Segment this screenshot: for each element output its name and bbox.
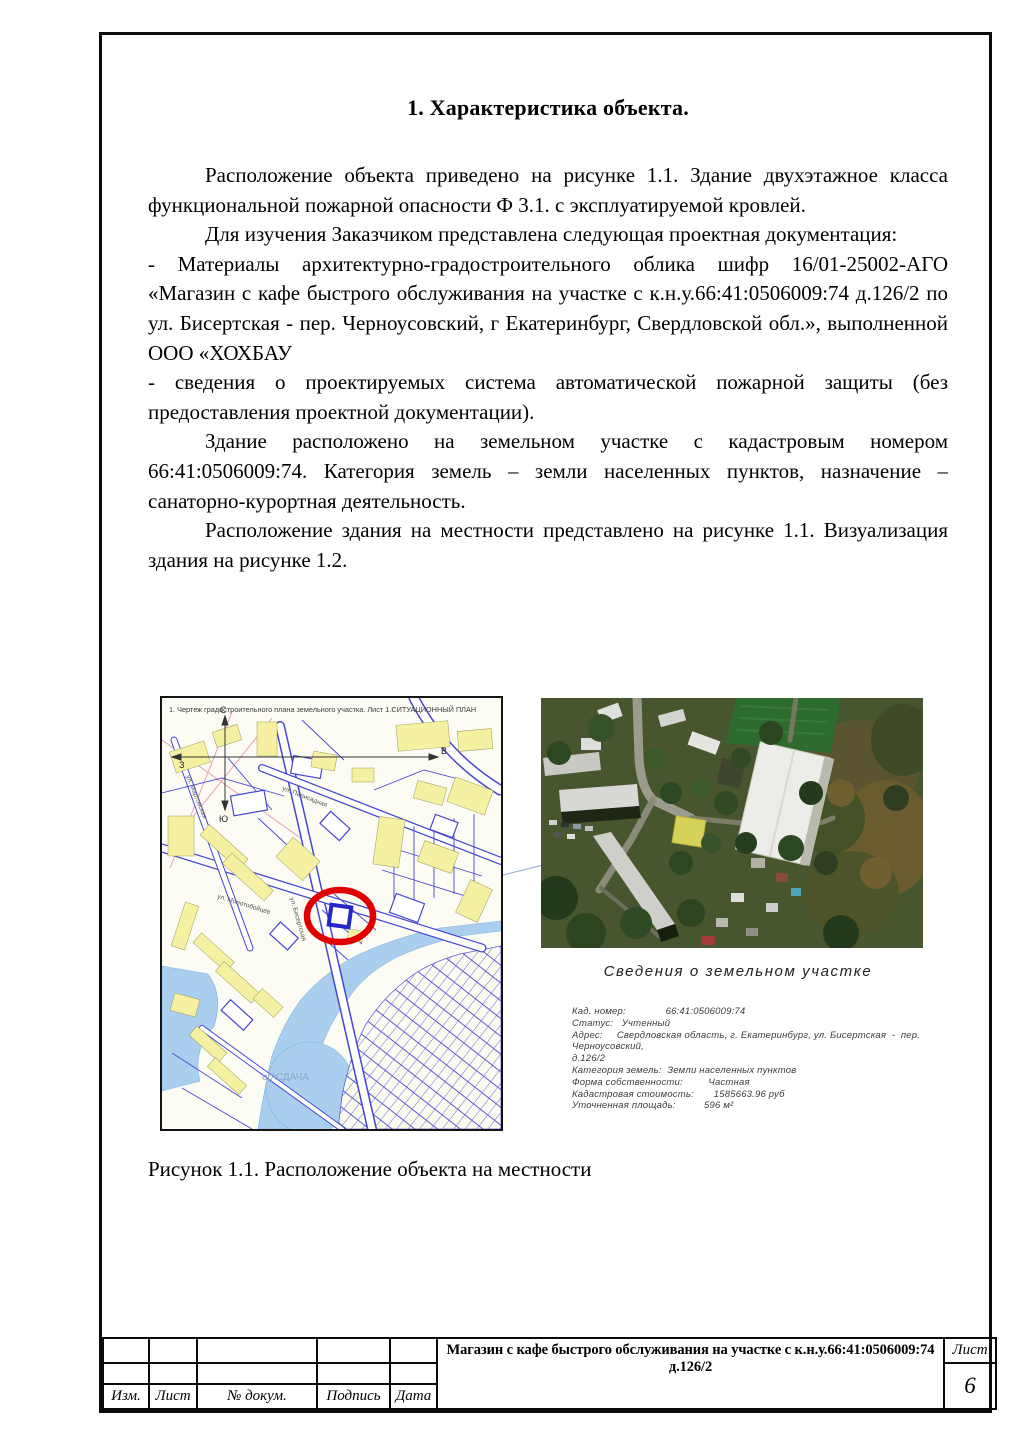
parcel-info-line: Статус: Учтенный [572, 1018, 962, 1030]
tb-label-data: Дата [390, 1384, 437, 1409]
target-parcel-highlight [672, 816, 706, 847]
tb-empty-cell [317, 1338, 390, 1363]
tb-empty-cell [390, 1363, 437, 1383]
parcel-info-block: Сведения о земельном участке Кад. номер:… [542, 963, 962, 1112]
compass-south-label: Ю [219, 814, 228, 824]
compass-east-label: В [441, 746, 447, 756]
parcel-info-line: д.126/2 [572, 1053, 962, 1065]
paragraph: - сведения о проектируемых система автом… [148, 368, 948, 427]
figure-caption: Рисунок 1.1. Расположение объекта на мес… [148, 1157, 948, 1182]
map-header: 1. Чертеж градостроительного плана земел… [169, 705, 476, 714]
tb-label-podpis: Подпись [317, 1384, 390, 1409]
paragraph: Для изучения Заказчиком представлена сле… [148, 220, 948, 250]
tb-empty-cell [149, 1363, 197, 1383]
tb-label-ndokum: № докум. [197, 1384, 317, 1409]
body-text: Расположение объекта приведено на рисунк… [148, 161, 948, 575]
paragraph: Расположение здания на местности предста… [148, 516, 948, 575]
target-parcel-square [329, 905, 352, 928]
tb-empty-cell [149, 1338, 197, 1363]
parcel-info-line: Уточненная площадь: 596 м² [572, 1100, 962, 1112]
parcel-info-lines: Кад. номер: 66:41:0506009:74 Статус: Учт… [542, 1006, 962, 1112]
tb-empty-cell [390, 1338, 437, 1363]
map-watermark: ор\СДАЧА [262, 1072, 309, 1083]
satellite-photo [541, 698, 923, 948]
tb-label-list: Лист [149, 1384, 197, 1409]
parcel-info-line: Кад. номер: 66:41:0506009:74 [572, 1006, 962, 1018]
page-frame: 1. Характеристика объекта. Расположение … [99, 32, 992, 1413]
tb-sheet-label: Лист [944, 1338, 996, 1363]
paragraph: Расположение объекта приведено на рисунк… [148, 161, 948, 220]
situational-plan-map: С Ю В З ул. Бисертская ул. Молотобойцев … [160, 696, 503, 1131]
compass-west-label: З [179, 760, 184, 770]
titleblock-table: Магазин с кафе быстрого обслуживания на … [102, 1337, 997, 1410]
tb-sheet-number: 6 [944, 1363, 996, 1409]
parcel-info-line: Категория земель: Земли населенных пункт… [572, 1065, 962, 1077]
tb-empty-cell [317, 1363, 390, 1383]
tb-empty-cell [197, 1338, 317, 1363]
tb-empty-cell [103, 1363, 149, 1383]
parcel-info-line: Форма собственности: Частная [572, 1077, 962, 1089]
tb-document-title: Магазин с кафе быстрого обслуживания на … [437, 1338, 944, 1409]
tb-empty-cell [197, 1363, 317, 1383]
tb-empty-cell [103, 1338, 149, 1363]
paragraph: Здание расположено на земельном участке … [148, 427, 948, 516]
parcel-info-line: Адрес: Свердловская область, г. Екатерин… [572, 1030, 962, 1054]
parcel-info-title: Сведения о земельном участке [542, 963, 934, 980]
tb-label-izm: Изм. [103, 1384, 149, 1409]
section-title: 1. Характеристика объекта. [148, 95, 948, 121]
parcel-info-line: Кадастровая стоимость: 1585663.96 руб [572, 1089, 962, 1101]
paragraph: - Материалы архитектурно-градостроительн… [148, 250, 948, 368]
